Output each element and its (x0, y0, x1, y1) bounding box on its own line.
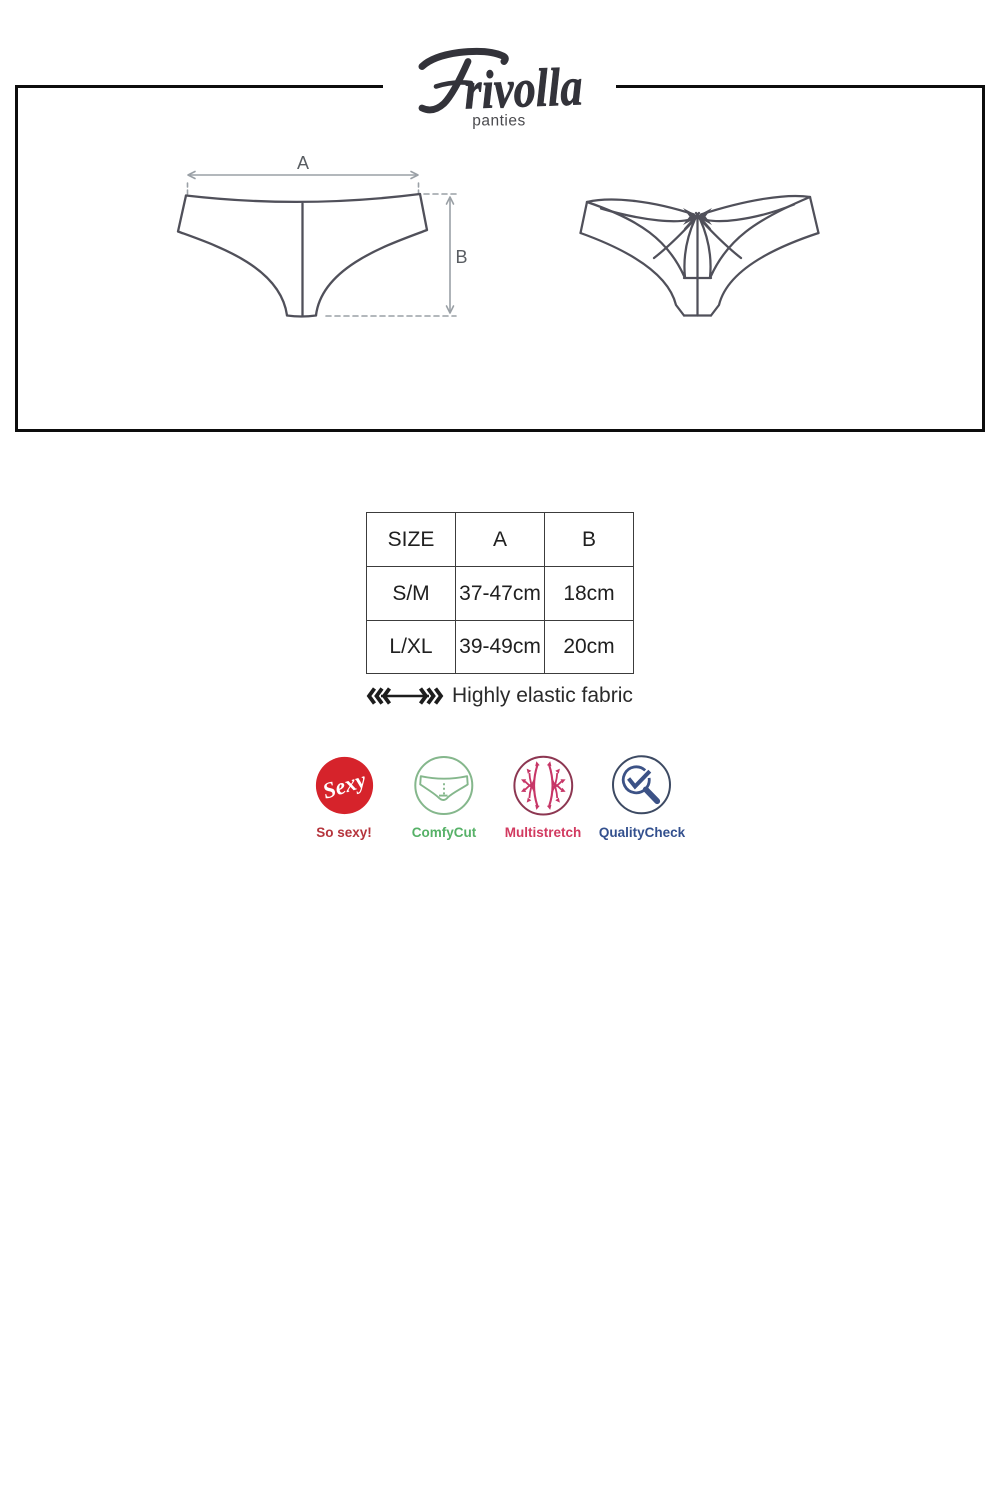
svg-text:B: B (456, 247, 468, 267)
svg-text:A: A (297, 153, 309, 173)
